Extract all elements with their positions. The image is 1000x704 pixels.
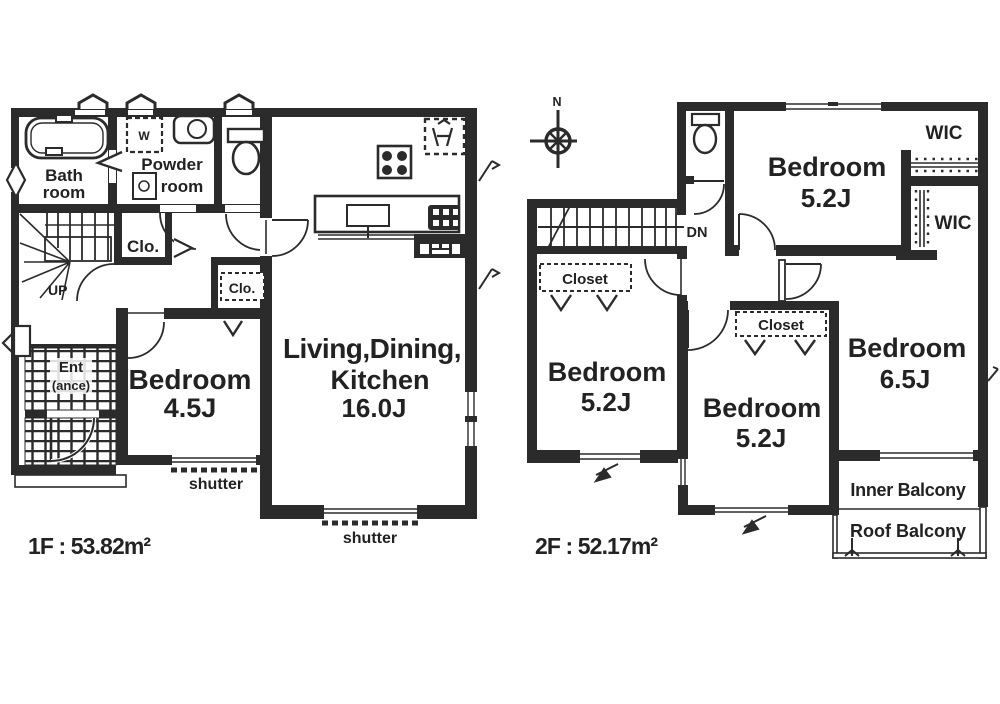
svg-text:N: N bbox=[552, 95, 561, 109]
svg-text:DN: DN bbox=[687, 225, 708, 241]
svg-text:Bedroom: Bedroom bbox=[129, 364, 252, 395]
svg-text:UP: UP bbox=[48, 282, 67, 298]
svg-text:2F : 52.17m²: 2F : 52.17m² bbox=[535, 533, 658, 559]
svg-text:5.2J: 5.2J bbox=[736, 423, 787, 453]
svg-text:Closet: Closet bbox=[758, 317, 804, 334]
svg-text:16.0J: 16.0J bbox=[341, 393, 406, 423]
svg-text:6.5J: 6.5J bbox=[880, 364, 931, 394]
svg-text:Bedroom: Bedroom bbox=[703, 393, 822, 423]
svg-text:Bedroom: Bedroom bbox=[848, 333, 967, 363]
svg-text:Bedroom: Bedroom bbox=[548, 357, 667, 387]
svg-text:Powder: Powder bbox=[141, 155, 203, 174]
svg-text:Inner Balcony: Inner Balcony bbox=[850, 480, 965, 500]
svg-text:room: room bbox=[161, 177, 204, 196]
svg-text:shutter: shutter bbox=[189, 476, 243, 493]
svg-text:Bedroom: Bedroom bbox=[768, 152, 887, 182]
svg-text:Closet: Closet bbox=[562, 271, 608, 288]
svg-text:WIC: WIC bbox=[926, 123, 963, 144]
svg-text:Clo.: Clo. bbox=[229, 280, 255, 296]
svg-text:5.2J: 5.2J bbox=[801, 183, 852, 213]
svg-text:1F : 53.82m²: 1F : 53.82m² bbox=[28, 533, 151, 559]
svg-text:WIC: WIC bbox=[935, 213, 972, 234]
svg-text:Roof Balcony: Roof Balcony bbox=[850, 521, 966, 541]
svg-text:Ent: Ent bbox=[59, 359, 83, 376]
svg-text:Living,Dining,: Living,Dining, bbox=[283, 333, 461, 364]
svg-text:4.5J: 4.5J bbox=[164, 393, 217, 423]
svg-text:5.2J: 5.2J bbox=[581, 387, 632, 417]
svg-text:Kitchen: Kitchen bbox=[330, 365, 429, 395]
svg-text:W: W bbox=[138, 129, 150, 143]
svg-text:Clo.: Clo. bbox=[127, 237, 159, 256]
svg-text:shutter: shutter bbox=[343, 530, 397, 547]
svg-text:(ance): (ance) bbox=[52, 378, 90, 393]
svg-text:room: room bbox=[43, 183, 86, 202]
